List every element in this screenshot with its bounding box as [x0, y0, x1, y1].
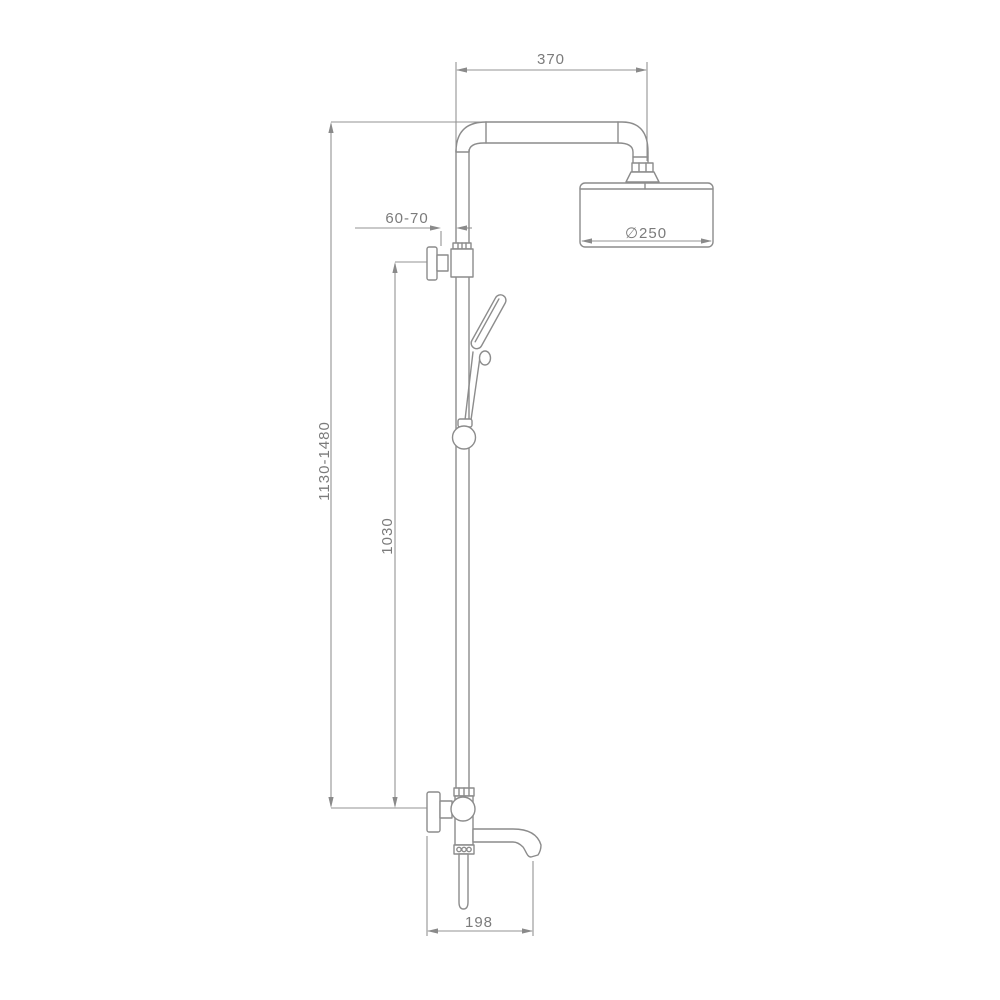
arrow-left-icon	[456, 225, 467, 230]
arrow-up-icon	[328, 122, 333, 133]
slider-knob-wheel	[453, 426, 476, 449]
arrow-left-icon	[427, 928, 438, 933]
wall-flange	[427, 247, 437, 280]
dimension-label-riser-height: 1030	[379, 517, 396, 554]
dimension-spout-reach: 198	[427, 836, 533, 936]
mount-cone	[626, 172, 659, 182]
arrow-down-icon	[392, 797, 397, 808]
drawing-canvas: 1130-1480 1030 370 60-70 198	[0, 0, 1000, 1000]
bottom-wall-bracket	[427, 792, 452, 832]
shower-arm	[456, 122, 648, 163]
wall-flange	[427, 792, 440, 832]
spout-body	[473, 829, 541, 857]
holder-clip	[480, 351, 491, 365]
bracket-stub	[440, 801, 452, 818]
dimension-wall-offset: 60-70	[355, 210, 472, 246]
dimension-label-wall-offset: 60-70	[385, 210, 428, 227]
dimension-riser-height: 1030	[379, 262, 427, 808]
dimension-label-spout-reach: 198	[465, 914, 493, 931]
handle-edge	[471, 357, 480, 420]
clamp-block	[451, 249, 473, 277]
arrow-right-icon	[522, 928, 533, 933]
arm-inner-edge	[469, 143, 633, 163]
dimension-label-head-diameter: ∅250	[625, 225, 667, 242]
spray-head	[469, 293, 508, 351]
dimension-arm-length: 370	[456, 51, 647, 161]
arrow-up-icon	[392, 262, 397, 273]
hand-shower	[465, 293, 508, 420]
dimension-label-column-height: 1130-1480	[316, 421, 333, 501]
dimension-label-arm-length: 370	[537, 51, 565, 68]
hose-outlet	[454, 845, 474, 909]
arrow-right-icon	[636, 67, 647, 72]
valve-knob	[451, 797, 475, 821]
bracket-stub	[437, 255, 448, 271]
arrow-right-icon	[430, 225, 441, 230]
top-wall-bracket	[427, 243, 473, 280]
shower-column-diagram: 1130-1480 1030 370 60-70 198	[0, 0, 1000, 1000]
outlet-tube	[459, 854, 468, 909]
tub-spout	[473, 829, 541, 857]
arrow-down-icon	[328, 797, 333, 808]
mixer-valve	[451, 788, 475, 845]
hex-nut	[632, 163, 653, 172]
arrow-left-icon	[456, 67, 467, 72]
arm-connector-nut	[626, 163, 659, 182]
